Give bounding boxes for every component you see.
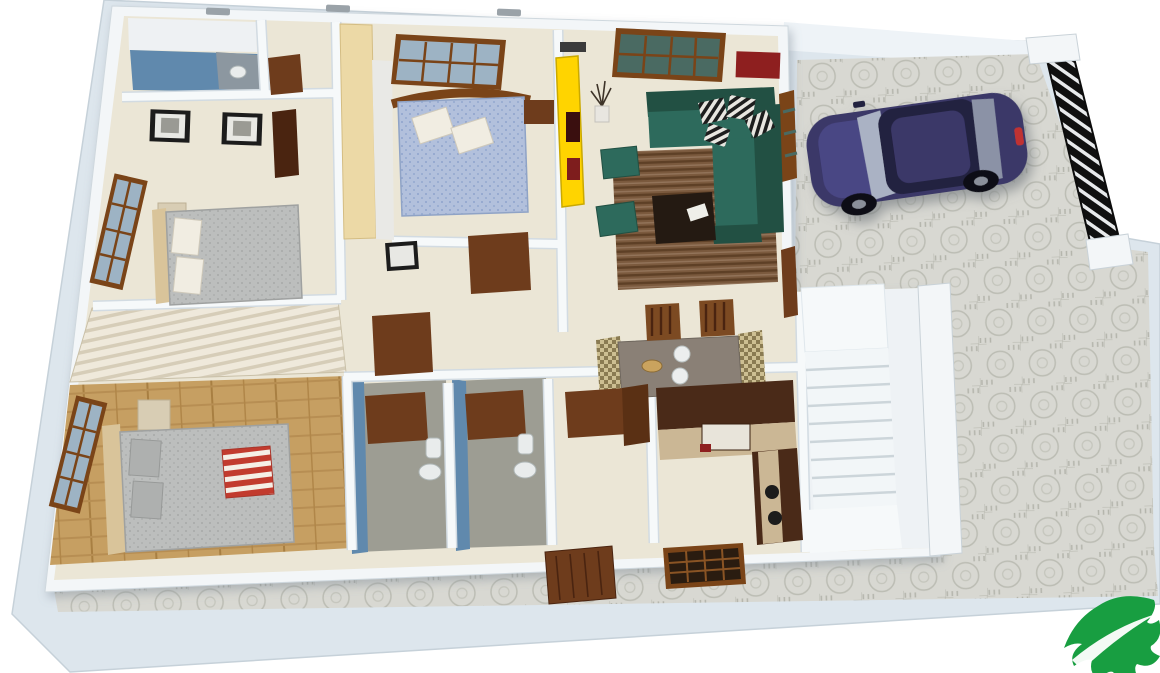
- gate-pillar: [1086, 234, 1133, 270]
- window: [612, 28, 726, 82]
- window: [391, 34, 506, 90]
- plate: [672, 368, 688, 384]
- wash-basin: [230, 66, 246, 78]
- double-bed-blue: [398, 97, 528, 216]
- side-table: [524, 100, 554, 124]
- chair: [699, 299, 735, 337]
- ottoman: [601, 146, 640, 179]
- toilet: [518, 434, 533, 454]
- plate: [674, 346, 690, 362]
- wash-basin: [419, 464, 441, 480]
- cushion: [726, 95, 755, 121]
- chair: [645, 303, 681, 341]
- hob-burner: [765, 485, 779, 499]
- pillow: [129, 439, 161, 477]
- door: [465, 390, 526, 440]
- wall-frame: [149, 109, 190, 142]
- roof-vent: [206, 8, 230, 16]
- wardrobe: [272, 109, 299, 178]
- fruit-bowl: [642, 360, 662, 372]
- door: [365, 392, 428, 444]
- coffee-table: [652, 192, 716, 244]
- books: [560, 42, 586, 52]
- pillow: [131, 481, 163, 519]
- pillow: [173, 257, 204, 295]
- gate-pillar: [1026, 34, 1080, 64]
- ottoman: [596, 202, 638, 237]
- east-door: [781, 246, 798, 318]
- door: [565, 388, 628, 438]
- bath1-wallface: [128, 18, 257, 52]
- kitchen-accent: [700, 444, 711, 452]
- hob-burner: [768, 511, 782, 525]
- car-roof-inner: [889, 109, 971, 185]
- wall-frame: [385, 241, 419, 271]
- floorplan-render: [0, 0, 1160, 673]
- toilet: [426, 438, 441, 458]
- lattice-window: [663, 543, 746, 589]
- striped-throw: [222, 446, 274, 498]
- stair-landing: [801, 284, 888, 352]
- door: [468, 232, 531, 294]
- wall-frame: [221, 112, 262, 145]
- upper-cabinets: [656, 380, 795, 430]
- bedside-cube: [138, 400, 170, 430]
- roof-vent: [326, 5, 350, 13]
- front-door: [545, 546, 616, 604]
- slatted-partition: [70, 300, 346, 382]
- door: [268, 54, 303, 95]
- floorplan-stage: [0, 0, 1160, 673]
- wash-basin: [514, 462, 536, 478]
- red-wall-panel: [736, 51, 781, 79]
- cabinet: [622, 384, 650, 446]
- double-bed: [152, 205, 302, 305]
- staircase: [801, 283, 962, 556]
- roof-vent: [497, 9, 521, 17]
- stair-steps: [805, 348, 897, 514]
- door: [372, 312, 433, 376]
- pillow: [171, 218, 202, 256]
- stair-base: [806, 505, 902, 553]
